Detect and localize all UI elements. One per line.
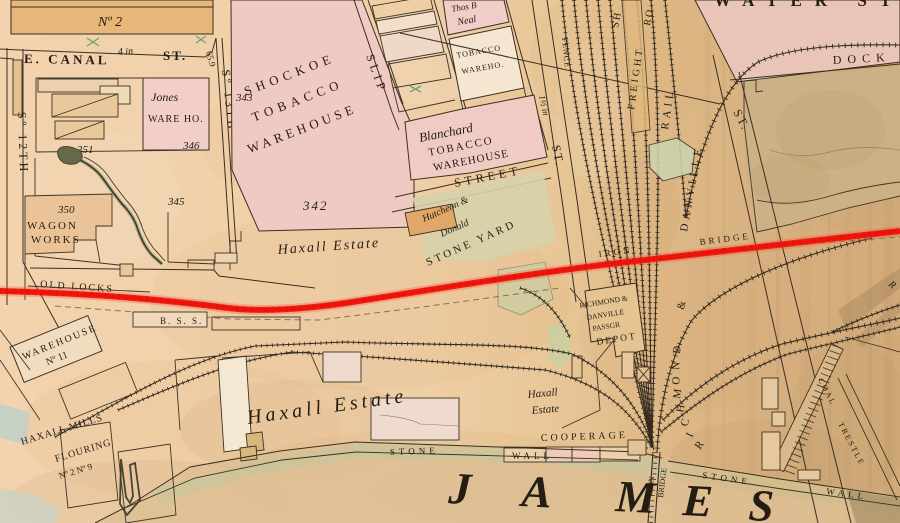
svg-text:D: D [671,341,684,354]
svg-text:N: N [670,357,683,370]
svg-text:Nº 2: Nº 2 [97,15,122,30]
svg-text:STONE: STONE [390,445,439,457]
svg-text:350: 350 [57,204,75,216]
svg-text:WATER ST: WATER ST [714,0,900,10]
svg-text:S: S [747,480,775,523]
svg-text:E: E [680,475,714,523]
svg-text:M: M [613,471,659,523]
svg-text:Jones: Jones [151,90,179,104]
svg-text:ST.: ST. [163,48,187,63]
svg-text:WAGON: WAGON [27,220,78,232]
svg-text:&: & [675,296,689,310]
svg-text:O: O [670,372,683,385]
svg-text:M: M [671,384,685,399]
svg-text:B. S. S.: B. S. S. [160,316,203,326]
svg-text:345: 345 [167,196,185,208]
svg-text:346: 346 [182,140,200,152]
svg-text:A: A [517,466,553,518]
svg-text:4 in: 4 in [117,46,133,58]
svg-text:WALL: WALL [512,451,553,461]
svg-text:Estate: Estate [530,403,560,417]
svg-text:WARE HO.: WARE HO. [148,114,204,125]
svg-text:J: J [446,463,474,514]
svg-text:342: 342 [302,198,329,213]
svg-text:Sº 12TH: Sº 12TH [15,112,31,175]
svg-text:H: H [674,399,688,413]
svg-text:WORKS: WORKS [31,234,81,246]
svg-text:E. CANAL: E. CANAL [24,51,110,67]
